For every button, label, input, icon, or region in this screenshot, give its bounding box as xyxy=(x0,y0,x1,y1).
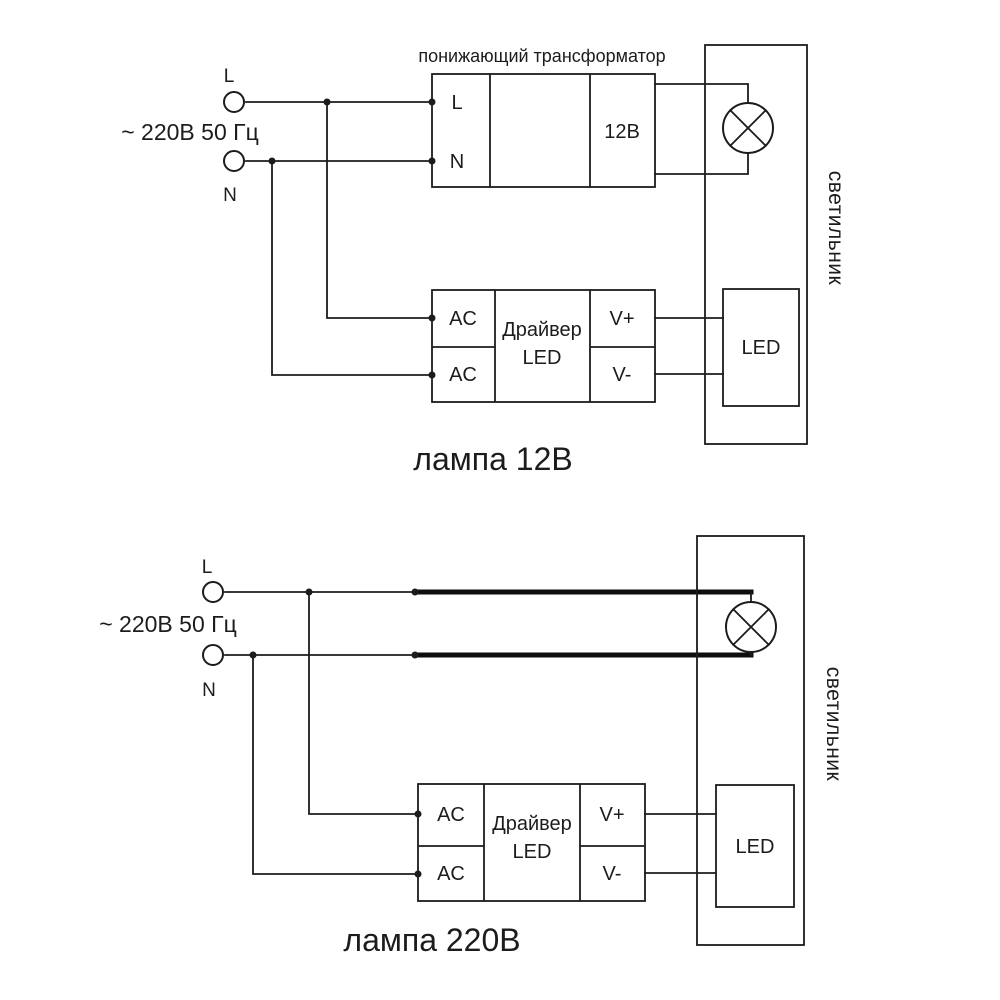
driver-output-vplus-label: V+ xyxy=(609,308,634,330)
driver-name-line2: LED xyxy=(513,841,552,863)
wire-transformer-out-bottom xyxy=(655,153,748,174)
wiring-diagram-page: L ~ 220В 50 Гц N понижающий трансформато… xyxy=(0,0,1000,1000)
transformer-input-n-label: N xyxy=(450,151,464,173)
source-voltage-label: ~ 220В 50 Гц xyxy=(99,611,237,637)
source-terminal-l-label: L xyxy=(202,557,213,578)
wire-neutral-branch-to-driver xyxy=(253,655,418,874)
source-terminal-n-label: N xyxy=(223,185,237,206)
diagram-lamp-12v: L ~ 220В 50 Гц N понижающий трансформато… xyxy=(121,45,847,477)
driver-input-ac-bottom-label: AC xyxy=(437,863,465,885)
source-voltage-label: ~ 220В 50 Гц xyxy=(121,119,259,145)
diagram-lamp-220v: L ~ 220В 50 Гц N светильник A xyxy=(99,536,845,958)
wire-neutral-branch-to-driver xyxy=(272,161,432,375)
wire-transformer-out-top xyxy=(655,84,748,103)
junction-dot xyxy=(324,99,331,106)
luminaire-label: светильник xyxy=(822,667,845,782)
led-module-label: LED xyxy=(742,337,781,359)
source-terminal-n xyxy=(203,645,223,665)
wire-line-branch-to-driver xyxy=(327,102,432,318)
source-terminal-l-label: L xyxy=(224,66,235,87)
junction-dot xyxy=(412,652,419,659)
driver-output-vminus-label: V- xyxy=(613,364,632,386)
driver-input-ac-top-label: AC xyxy=(437,804,465,826)
wiring-diagram-canvas: L ~ 220В 50 Гц N понижающий трансформато… xyxy=(0,0,1000,1000)
luminaire-label: светильник xyxy=(824,171,847,286)
diagram-caption-220v: лампа 220В xyxy=(343,922,520,958)
transformer-title: понижающий трансформатор xyxy=(418,46,665,66)
transformer-output-voltage-label: 12В xyxy=(604,121,640,143)
diagram-caption-12v: лампа 12В xyxy=(413,441,572,477)
driver-output-vminus-label: V- xyxy=(603,863,622,885)
junction-dot xyxy=(306,589,313,596)
driver-name-line2: LED xyxy=(523,347,562,369)
junction-dot xyxy=(269,158,276,165)
source-terminal-l xyxy=(203,582,223,602)
wire-line-branch-to-driver xyxy=(309,592,418,814)
transformer-input-l-label: L xyxy=(451,92,462,114)
junction-dot xyxy=(250,652,257,659)
led-module-label: LED xyxy=(736,836,775,858)
driver-output-vplus-label: V+ xyxy=(599,804,624,826)
source-terminal-l xyxy=(224,92,244,112)
driver-input-ac-top-label: AC xyxy=(449,308,477,330)
source-terminal-n xyxy=(224,151,244,171)
driver-input-ac-bottom-label: AC xyxy=(449,364,477,386)
driver-name-line1: Драйвер xyxy=(492,813,572,835)
source-terminal-n-label: N xyxy=(202,680,216,701)
driver-name-line1: Драйвер xyxy=(502,319,582,341)
junction-dot xyxy=(412,589,419,596)
